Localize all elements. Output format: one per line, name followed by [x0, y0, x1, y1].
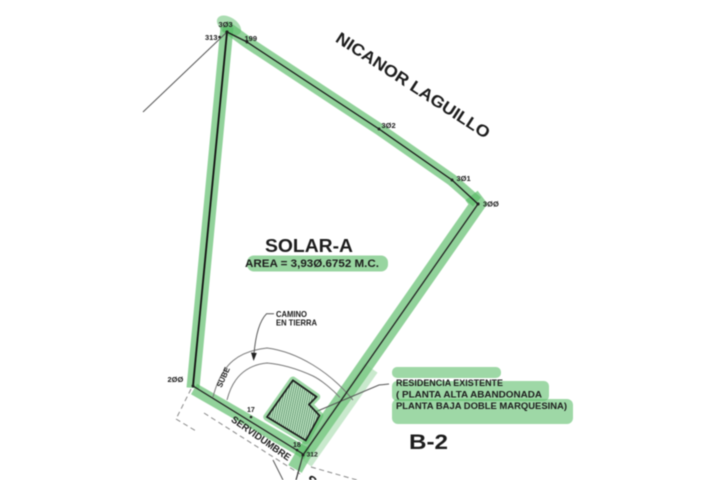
svg-text:3Ø2: 3Ø2 [382, 121, 396, 130]
svg-text:17: 17 [247, 407, 255, 414]
svg-text:312: 312 [307, 452, 319, 459]
svg-text:3Ø1: 3Ø1 [457, 174, 471, 183]
svg-text:2ØØ: 2ØØ [168, 375, 184, 384]
svg-text:AREA = 3,93Ø.6752 M.C.: AREA = 3,93Ø.6752 M.C. [245, 258, 379, 270]
svg-text:18: 18 [293, 442, 301, 449]
svg-text:EN TIERRA: EN TIERRA [276, 318, 317, 328]
svg-text:199: 199 [245, 34, 258, 43]
svg-text:( PLANTA ALTA ABANDONADA: ( PLANTA ALTA ABANDONADA [396, 389, 542, 399]
svg-text:313: 313 [205, 33, 218, 42]
svg-text:PLANTA BAJA DOBLE MARQUESINA): PLANTA BAJA DOBLE MARQUESINA) [396, 401, 567, 411]
svg-text:SOLAR-A: SOLAR-A [265, 235, 353, 256]
svg-text:B-2: B-2 [409, 430, 448, 454]
svg-text:RESIDENCIA EXISTENTE: RESIDENCIA EXISTENTE [396, 378, 503, 388]
svg-text:3Ø3: 3Ø3 [219, 20, 233, 29]
svg-text:3ØØ: 3ØØ [483, 200, 499, 209]
